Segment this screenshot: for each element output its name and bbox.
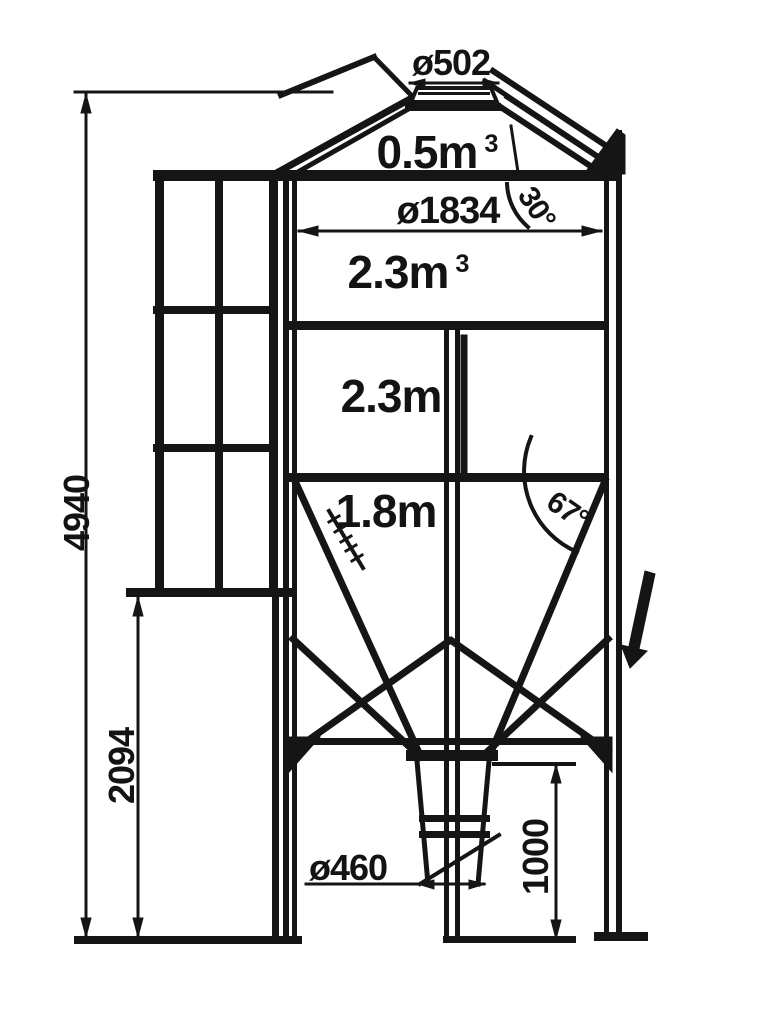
frame-right-post <box>269 170 278 597</box>
left-leg-outer <box>272 589 279 941</box>
right-leg-foot <box>594 932 648 941</box>
ground-line-left <box>74 936 302 944</box>
frame-middle-post <box>215 170 223 597</box>
leader-line-30deg <box>511 126 518 172</box>
arrow-2094-top <box>133 597 143 616</box>
horizontal-brace <box>290 738 610 745</box>
frame-divider-upper <box>153 306 278 314</box>
label-total-height: 4940 <box>59 475 95 551</box>
slide-gate-bottom <box>419 831 490 838</box>
center-column-right <box>455 330 460 940</box>
wall-right-outer <box>616 130 622 940</box>
label-leg-height: 2094 <box>104 728 140 804</box>
label-mid-volume: 2.3m3 <box>348 249 469 295</box>
arrow-1834-right <box>582 226 601 236</box>
center-column-left <box>444 330 449 940</box>
arrow-4940-top <box>81 94 91 113</box>
brace-gusset-right <box>581 737 612 772</box>
label-lower-height: 1.8m <box>336 488 437 534</box>
fill-cap-inner-line <box>418 92 490 95</box>
arrow-2094-bottom <box>133 918 143 937</box>
frame-left-post <box>155 170 164 597</box>
open-lid-line <box>281 57 374 95</box>
open-lid-link <box>374 57 411 95</box>
body-seam <box>285 321 607 330</box>
roof-apex-base <box>405 103 501 111</box>
slide-gate-top <box>419 815 490 822</box>
outlet-bottom-plate <box>443 936 576 943</box>
spout-wall-left <box>417 761 428 884</box>
brace-gusset-left <box>289 737 320 772</box>
label-mid-height: 2.3m <box>341 373 442 419</box>
label-outlet-diameter: ø460 <box>309 850 387 886</box>
frame-divider-lower <box>153 444 278 452</box>
silo-technical-drawing: ø502 0.5m3 ø1834 30° 2.3m3 2.3m 1.8m 67°… <box>0 0 762 1024</box>
arrow-1000-top <box>551 765 561 783</box>
label-body-diameter: ø1834 <box>397 192 500 230</box>
spout-wall-right <box>478 761 489 884</box>
label-top-volume: 0.5m3 <box>377 129 498 175</box>
wall-left-outer <box>283 170 289 943</box>
label-top-diameter: ø502 <box>412 45 490 81</box>
arrow-1834-left <box>299 226 318 236</box>
label-mid-volume-exponent: 3 <box>455 250 468 278</box>
label-top-volume-exponent: 3 <box>484 130 497 158</box>
frame-ledge <box>126 588 296 597</box>
outlet-flange <box>406 750 498 761</box>
hopper-slope-right <box>489 481 605 757</box>
bold-marker-arrow <box>621 571 655 668</box>
wall-left-inner <box>292 176 297 939</box>
wall-right-inner <box>604 172 609 935</box>
label-top-volume-value: 0.5m <box>377 126 478 178</box>
label-outlet-height: 1000 <box>518 819 554 895</box>
arrow-4940-bottom <box>81 918 91 937</box>
label-mid-volume-value: 2.3m <box>348 246 449 298</box>
